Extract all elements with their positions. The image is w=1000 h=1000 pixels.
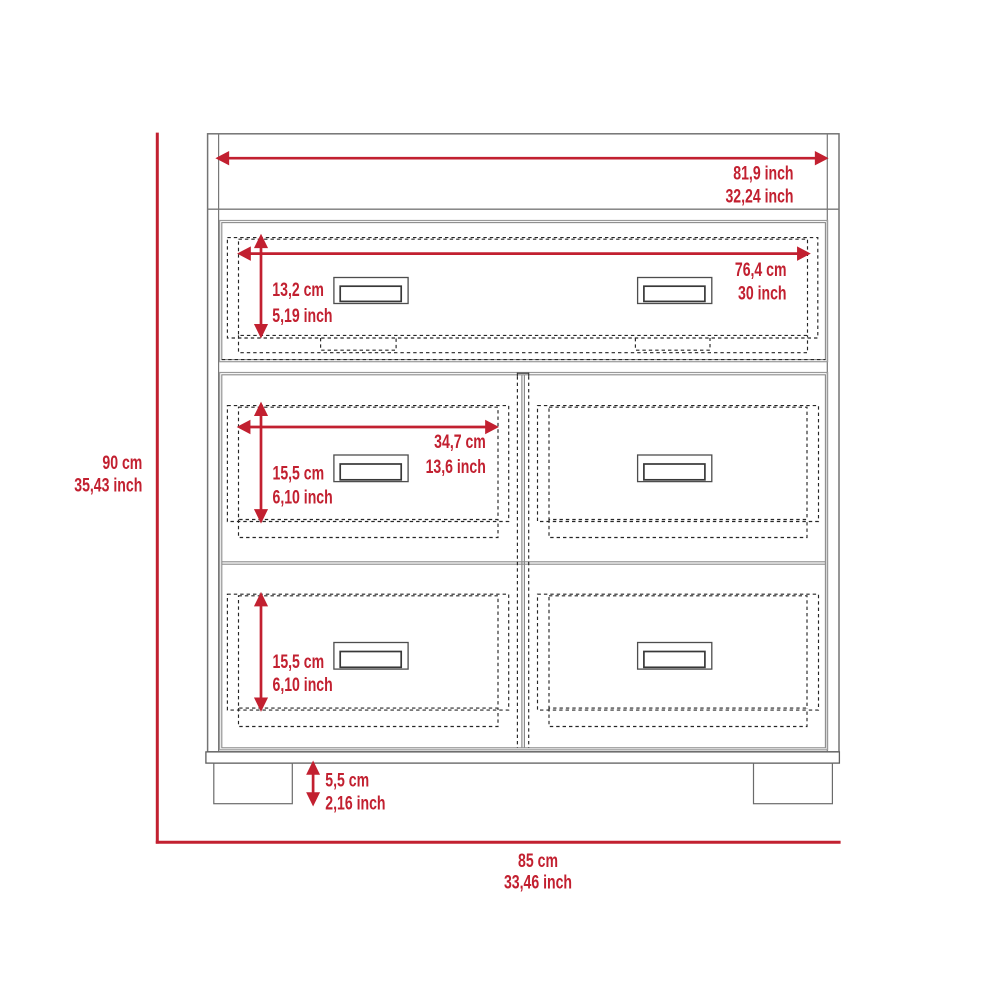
svg-text:81,9 inch: 81,9 inch bbox=[733, 162, 793, 184]
svg-text:85 cm: 85 cm bbox=[518, 850, 558, 872]
svg-text:13,6 inch: 13,6 inch bbox=[426, 456, 486, 478]
svg-text:5,5 cm: 5,5 cm bbox=[325, 769, 369, 791]
svg-text:2,16 inch: 2,16 inch bbox=[325, 792, 385, 814]
svg-text:35,43 inch: 35,43 inch bbox=[74, 474, 142, 496]
svg-text:6,10 inch: 6,10 inch bbox=[273, 674, 333, 696]
svg-text:90 cm: 90 cm bbox=[102, 452, 142, 474]
svg-text:15,5 cm: 15,5 cm bbox=[273, 462, 325, 484]
svg-text:30 inch: 30 inch bbox=[738, 282, 786, 304]
svg-text:6,10 inch: 6,10 inch bbox=[273, 486, 333, 508]
svg-text:76,4 cm: 76,4 cm bbox=[735, 259, 787, 281]
svg-text:34,7 cm: 34,7 cm bbox=[434, 431, 486, 453]
svg-text:5,19 inch: 5,19 inch bbox=[272, 305, 332, 327]
svg-text:33,46 inch: 33,46 inch bbox=[504, 871, 572, 893]
svg-text:32,24 inch: 32,24 inch bbox=[725, 185, 793, 207]
svg-text:15,5 cm: 15,5 cm bbox=[273, 651, 325, 673]
svg-text:13,2 cm: 13,2 cm bbox=[272, 279, 324, 301]
